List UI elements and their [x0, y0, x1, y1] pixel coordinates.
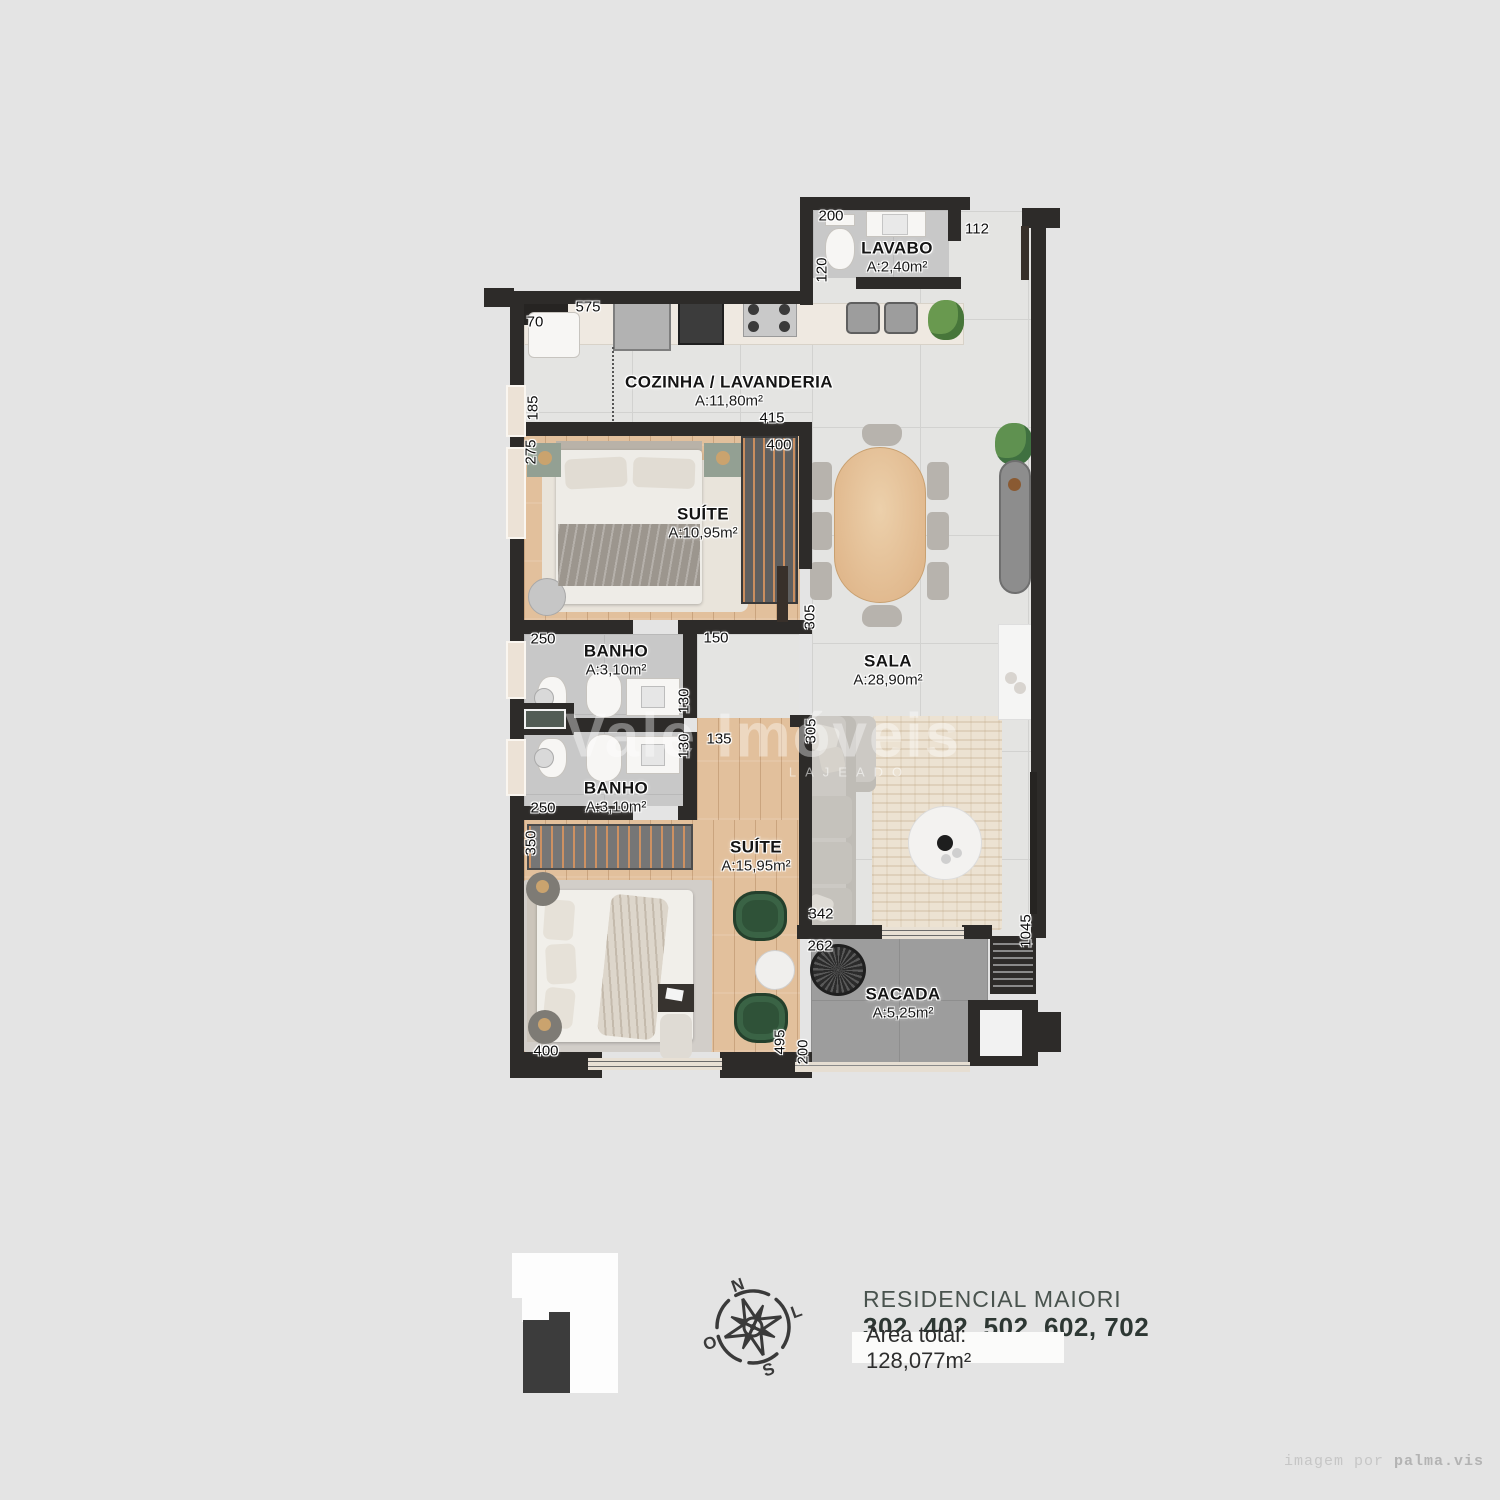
room-name: COZINHA / LAVANDERIA: [625, 373, 833, 393]
suite1-door-leaf: [777, 566, 788, 622]
dimension-label: 415: [759, 410, 784, 427]
room-name: SUÍTE: [721, 838, 790, 858]
kitchen-zone-divider: [612, 347, 614, 421]
total-area-box: Área total: 128,077m²: [852, 1332, 1064, 1363]
credit-brand: palma.vis: [1394, 1453, 1484, 1470]
room-area: A:28,90m²: [853, 672, 922, 689]
room-area: A:3,10m²: [584, 662, 648, 679]
dimension-label: 250: [530, 800, 555, 817]
dining-chair: [862, 605, 902, 627]
coffee-table-cup: [941, 854, 951, 864]
dimension-label: 275: [523, 439, 540, 464]
wall: [487, 291, 812, 304]
floor-plan-page: { "plan": { "rooms": [ {"name": "LAVABO"…: [0, 0, 1500, 1500]
lavabo-basin: [882, 214, 908, 235]
suite1-pillow: [632, 457, 695, 489]
suite2-lamp: [538, 1018, 551, 1031]
compass-o: O: [700, 1332, 719, 1354]
living-plant: [995, 423, 1033, 465]
room-label-suite2: SUÍTE A:15,95m²: [721, 838, 790, 875]
key-plan-unit-highlight: [523, 1320, 570, 1393]
dining-table: [834, 447, 926, 603]
room-label-lavabo: LAVABO A:2,40m²: [861, 239, 933, 276]
console-decor: [1014, 682, 1026, 694]
balcony-sliding-door: [882, 927, 964, 939]
balcony-railing: [795, 1062, 970, 1072]
dining-chair: [810, 462, 832, 500]
room-name: SALA: [853, 652, 922, 672]
suite1-pillow: [564, 456, 627, 489]
compass-rose: N L S O: [700, 1274, 806, 1380]
wall: [962, 925, 992, 939]
kitchen-plant: [928, 300, 964, 340]
console-decor: [1005, 672, 1017, 684]
dimension-label: 112: [965, 221, 989, 238]
dimension-label: 342: [808, 906, 833, 923]
dining-chair: [810, 512, 832, 550]
room-area: A:5,25m²: [865, 1005, 940, 1022]
room-area: A:2,40m²: [861, 259, 933, 276]
coffee-table-cup: [952, 848, 962, 858]
dining-chair: [927, 462, 949, 500]
cooktop-burner: [748, 321, 759, 332]
room-name: BANHO: [584, 642, 648, 662]
image-credit: imagem por palma.vis: [1284, 1453, 1484, 1470]
suite2-wardrobe: [527, 824, 693, 870]
tv-panel: [1030, 772, 1037, 914]
suite1-wardrobe: [741, 436, 798, 604]
kitchen-sink-double: [884, 302, 918, 334]
room-label-suite1: SUÍTE A:10,95m²: [668, 505, 737, 542]
suite1-lamp: [538, 451, 552, 465]
key-plan-shape: [570, 1318, 618, 1393]
dimension-label: 120: [814, 257, 831, 282]
room-label-sacada: SACADA A:5,25m²: [865, 985, 940, 1022]
dimension-label: 200: [795, 1039, 812, 1064]
dimension-label: 305: [803, 718, 820, 743]
room-area: A:15,95m²: [721, 858, 790, 875]
dimension-label: 400: [533, 1043, 558, 1060]
wall: [678, 806, 697, 820]
cooktop-burner: [779, 321, 790, 332]
washer: [613, 299, 671, 351]
wall: [948, 197, 961, 241]
plan-watermark-sub: LAJEADO: [789, 765, 911, 780]
sofa-cushion: [808, 842, 852, 884]
room-area: A:3,10m²: [584, 799, 648, 816]
wall: [800, 197, 813, 305]
dryer: [678, 299, 724, 345]
sofa-cushion: [808, 796, 852, 838]
credit-prefix: imagem por: [1284, 1453, 1394, 1470]
dimension-label: 1045: [1018, 914, 1035, 947]
room-label-banho2: BANHO A:3,10m²: [584, 779, 648, 816]
suite2-round-table: [755, 950, 795, 990]
suite1-lamp: [716, 451, 730, 465]
dimension-label: 185: [525, 395, 542, 420]
dimension-label: 575: [575, 299, 600, 316]
dimension-label: 350: [523, 830, 540, 855]
kitchen-sink-double: [846, 302, 880, 334]
wall: [799, 422, 812, 569]
window: [506, 641, 526, 699]
room-name: BANHO: [584, 779, 648, 799]
shaft-box-inner: [980, 1010, 1022, 1056]
dimension-label: 250: [530, 631, 555, 648]
dimension-label: 135: [706, 731, 731, 748]
room-name: SACADA: [865, 985, 940, 1005]
room-area: A:11,80m²: [625, 393, 833, 410]
total-area-text: Área total: 128,077m²: [852, 1322, 1064, 1374]
room-label-cozinha: COZINHA / LAVANDERIA A:11,80m²: [625, 373, 833, 410]
console-table: [998, 624, 1032, 720]
shower-niche-glass: [524, 709, 566, 729]
dimension-label: 130: [676, 688, 693, 713]
dimension-label: 130: [676, 733, 693, 758]
coffee-table-vase: [937, 835, 953, 851]
compass-l: L: [788, 1301, 804, 1322]
banho2-shower-head: [534, 748, 554, 768]
plan-watermark: Vale Imóveis: [565, 701, 961, 772]
room-area: A:10,95m²: [668, 525, 737, 542]
dining-chair: [927, 512, 949, 550]
sideboard-decor: [1008, 478, 1021, 491]
suite2-sliding-door: [588, 1058, 722, 1070]
window: [506, 739, 526, 796]
dimension-label: 400: [766, 437, 791, 454]
dining-chair: [862, 424, 902, 446]
window: [506, 385, 526, 437]
dimension-label: 150: [703, 630, 728, 647]
wall: [678, 620, 812, 634]
suite2-ottoman: [660, 1014, 692, 1060]
armchair-green: [733, 891, 787, 941]
cooktop-burner: [779, 304, 790, 315]
dimension-label: 70: [527, 314, 544, 331]
room-name: SUÍTE: [668, 505, 737, 525]
dimension-label: 200: [818, 208, 843, 225]
entry-door-leaf: [1021, 226, 1029, 280]
wall: [856, 277, 961, 289]
dimension-label: 305: [802, 604, 819, 629]
compass-n: N: [729, 1274, 747, 1296]
wall: [510, 620, 633, 634]
room-label-banho1: BANHO A:3,10m²: [584, 642, 648, 679]
suite2-pillow: [545, 943, 577, 985]
compass-s: S: [760, 1359, 777, 1380]
room-name: LAVABO: [861, 239, 933, 259]
project-title: RESIDENCIAL MAIORI: [863, 1286, 1122, 1313]
dimension-label: 262: [807, 938, 832, 955]
suite2-lamp: [536, 880, 549, 893]
cooktop-burner: [748, 304, 759, 315]
room-label-sala: SALA A:28,90m²: [853, 652, 922, 689]
dimension-label: 495: [772, 1029, 789, 1054]
key-plan-shape: [512, 1253, 618, 1298]
dining-chair: [927, 562, 949, 600]
dining-chair: [810, 562, 832, 600]
